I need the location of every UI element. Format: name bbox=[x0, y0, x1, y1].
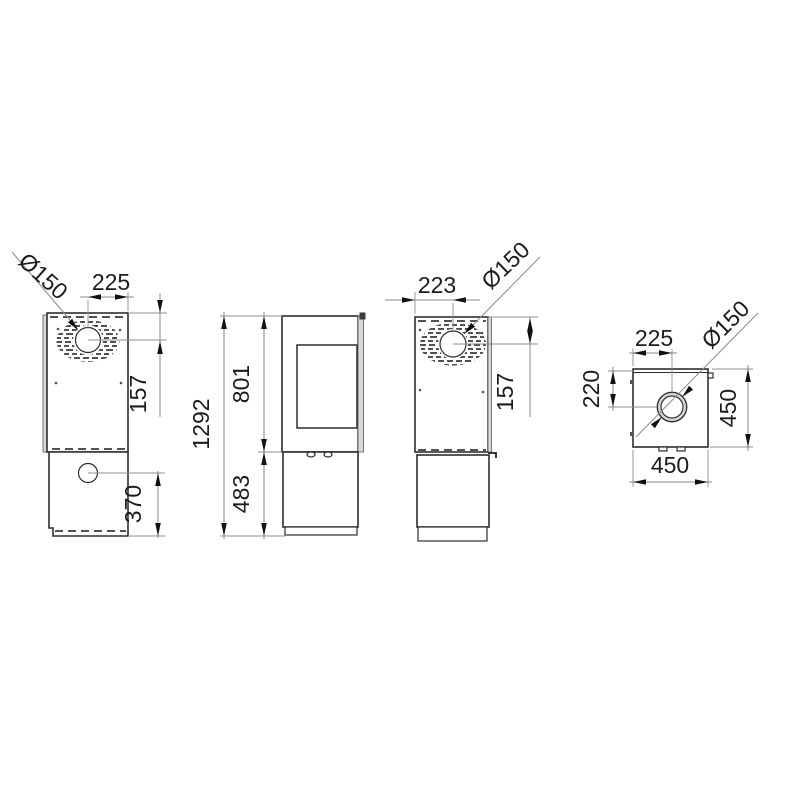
arrowhead bbox=[261, 439, 267, 452]
dim-label-flue-offset-top-side: 157 bbox=[492, 373, 518, 411]
hinge-tab bbox=[708, 373, 713, 378]
dim-label-lower-outlet-height: 370 bbox=[120, 485, 146, 523]
dim-label-flue-offset-y-top: 220 bbox=[578, 370, 604, 408]
arrowhead bbox=[221, 316, 227, 329]
flue-pipe-inner-circle bbox=[661, 396, 683, 418]
arrowhead bbox=[610, 394, 616, 407]
top-view: 225 220 Ø150 450 450 bbox=[578, 295, 758, 487]
arrowhead bbox=[527, 331, 533, 344]
plinth-outline bbox=[285, 527, 357, 535]
arrowhead bbox=[88, 294, 101, 300]
side-panel-edge bbox=[488, 317, 492, 452]
door-edge-strip bbox=[358, 316, 364, 452]
arrowhead bbox=[155, 523, 161, 536]
arrowhead bbox=[745, 434, 751, 447]
arrowhead bbox=[527, 318, 533, 331]
dim-label-depth: 450 bbox=[715, 389, 741, 427]
arrowhead bbox=[155, 473, 161, 486]
arrowhead bbox=[695, 479, 708, 485]
dim-label-flue-diameter-side: Ø150 bbox=[476, 236, 535, 294]
arrowhead bbox=[633, 479, 646, 485]
dim-label-flue-offset-x-back: 225 bbox=[92, 269, 130, 295]
screw-hole bbox=[419, 329, 422, 332]
base-outline bbox=[283, 452, 358, 527]
dim-label-base-height: 483 bbox=[228, 475, 254, 513]
arrowhead bbox=[221, 523, 227, 536]
dim-label-flue-diameter-back: Ø150 bbox=[14, 248, 73, 305]
arrowhead bbox=[610, 371, 616, 384]
side-view-glass: 1292 801 483 bbox=[188, 312, 366, 539]
hinge-tab bbox=[360, 313, 366, 320]
arrowhead bbox=[402, 297, 415, 303]
back-view-right: 223 Ø150 157 bbox=[385, 236, 540, 541]
back-view-left: 225 Ø150 157 370 bbox=[12, 248, 167, 538]
dim-label-flue-offset-x-top: 225 bbox=[635, 325, 673, 351]
arrowhead bbox=[659, 350, 672, 356]
hinge-mark bbox=[630, 432, 633, 436]
dim-label-width: 450 bbox=[651, 452, 689, 478]
foot-mark bbox=[677, 447, 685, 451]
dim-label-body-height: 801 bbox=[228, 365, 254, 403]
technical-drawing-page: 225 Ø150 157 370 1292 bbox=[0, 0, 800, 800]
base-outline bbox=[417, 455, 489, 527]
dim-label-flue-offset-top-back: 157 bbox=[125, 375, 151, 413]
dim-label-total-height: 1292 bbox=[188, 398, 214, 449]
hinge-knob bbox=[307, 452, 315, 457]
dim-label-flue-offset-x-side: 223 bbox=[418, 272, 456, 298]
arrowhead bbox=[261, 316, 267, 329]
arrowhead bbox=[261, 523, 267, 536]
arrowhead bbox=[157, 300, 163, 313]
glass-window bbox=[297, 345, 357, 428]
screw-hole bbox=[481, 332, 484, 335]
screw-hole bbox=[57, 328, 60, 331]
arrowhead bbox=[745, 369, 751, 382]
hinge-mark bbox=[630, 380, 633, 384]
arrowhead bbox=[115, 294, 128, 300]
arrowhead bbox=[453, 297, 466, 303]
screw-hole bbox=[55, 382, 58, 385]
screw-hole bbox=[419, 389, 422, 392]
screw-hole bbox=[120, 382, 123, 385]
stove-dimension-drawing: 225 Ø150 157 370 1292 bbox=[0, 0, 800, 800]
foot-mark bbox=[659, 447, 667, 451]
dim-label-flue-diameter-top: Ø150 bbox=[696, 295, 754, 353]
screw-hole bbox=[119, 329, 122, 332]
screw-hole bbox=[482, 391, 485, 394]
arrowhead bbox=[261, 452, 267, 465]
arrowhead bbox=[157, 341, 163, 354]
plinth-outline bbox=[418, 527, 487, 541]
hinge-knob bbox=[324, 452, 332, 457]
arrowhead bbox=[633, 350, 646, 356]
